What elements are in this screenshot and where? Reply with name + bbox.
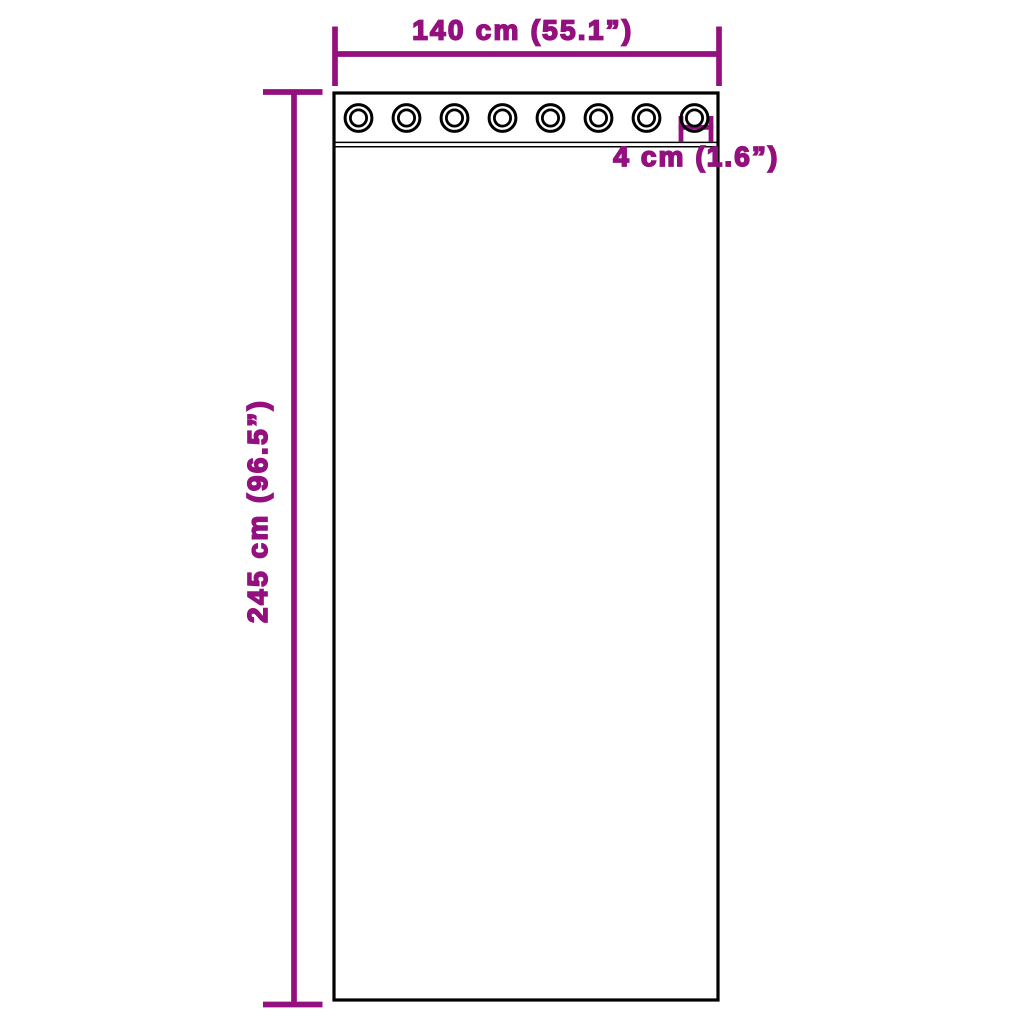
svg-text:4 cm (1.6”): 4 cm (1.6”) [613,141,777,172]
svg-text:140 cm (55.1”): 140 cm (55.1”) [412,14,631,45]
svg-text:245 cm (96.5”): 245 cm (96.5”) [242,401,273,623]
